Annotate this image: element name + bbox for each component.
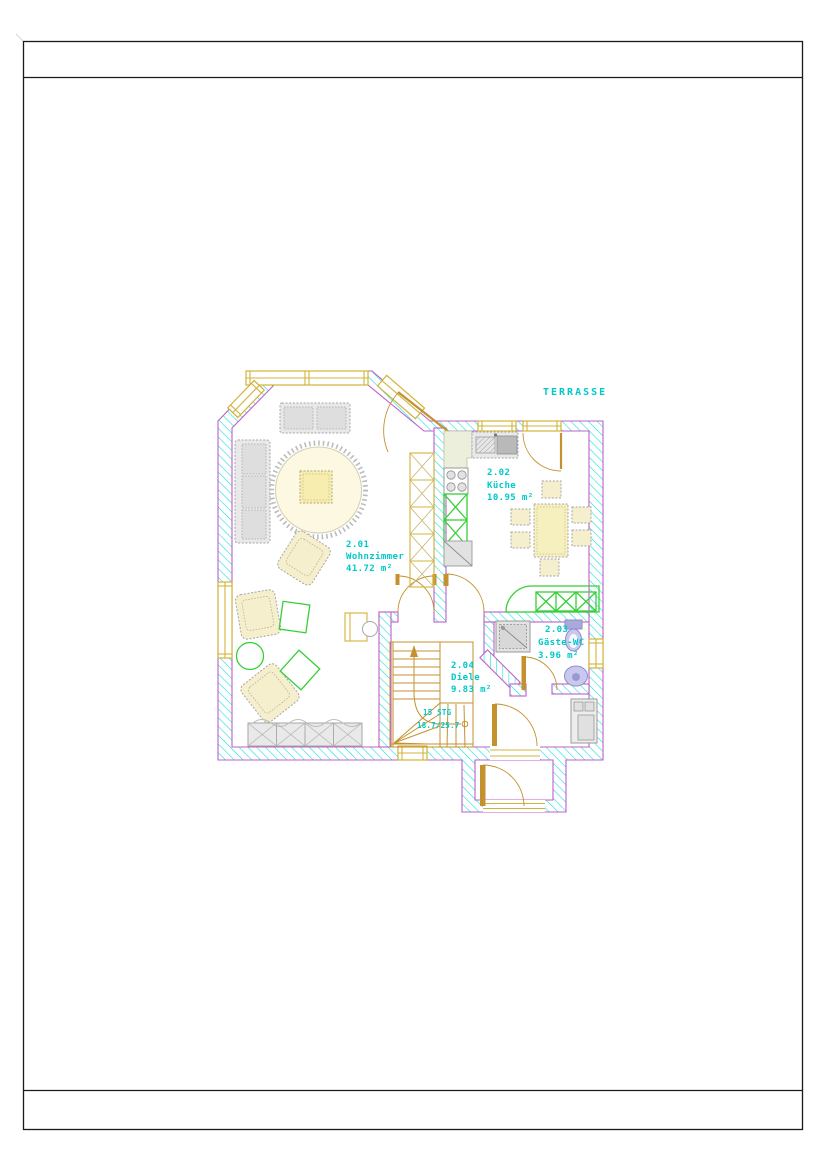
armchair	[275, 529, 332, 588]
window-living-left	[218, 582, 232, 658]
terrace-door-kitchen	[523, 421, 561, 471]
wood-stove	[345, 613, 378, 641]
double-door-living-hall	[396, 574, 437, 612]
dining-table	[534, 504, 568, 557]
armchair	[234, 589, 281, 640]
living-room-furniture	[234, 403, 434, 746]
door-hall-vestibule	[490, 704, 540, 760]
corner-fold-mark	[16, 34, 23, 41]
kitchen-sink	[472, 432, 518, 458]
wall-wc-left	[484, 622, 494, 655]
window-living-top	[246, 371, 368, 385]
shower	[496, 621, 530, 652]
shelf-unit-x	[410, 453, 434, 587]
room-number-wc: 2.03	[545, 625, 568, 635]
stair-steps-label: 15 STG	[423, 708, 452, 717]
window-wc-right	[589, 639, 603, 668]
corner-cabinet	[444, 541, 472, 566]
room-area-diele: 9.83 m²	[451, 685, 492, 695]
armchair	[239, 661, 302, 724]
sideboard-bottom	[248, 720, 362, 747]
room-number-diele: 2.04	[451, 661, 474, 671]
corner-bench	[506, 586, 599, 612]
wardrobe	[571, 699, 597, 743]
room-area-wc: 3.96 m²	[538, 651, 579, 661]
plant-circle	[237, 643, 264, 670]
drawing-sheet: 2.01 Wohnzimmer 41.72 m² 2.02 Küche 10.9…	[0, 0, 826, 1169]
coffee-table	[300, 471, 332, 503]
door-kitchen	[444, 574, 485, 612]
room-number-wohnzimmer: 2.01	[346, 540, 369, 550]
entrance-door	[480, 765, 545, 812]
wc-sink	[565, 666, 588, 686]
hall-furniture	[571, 699, 597, 743]
stair-ratio-label: 18.7/25.7	[417, 721, 459, 730]
room-name-wohnzimmer: Wohnzimmer	[346, 551, 404, 562]
side-table-green	[279, 601, 310, 632]
porch-inner-outline	[486, 812, 555, 849]
stove	[444, 468, 468, 494]
room-area-kueche: 10.95 m²	[487, 493, 534, 503]
entrance-steps	[505, 818, 528, 835]
sheet-frame	[16, 34, 803, 1130]
wall-living-hall	[379, 612, 391, 747]
window-kitchen-top	[478, 421, 516, 431]
room-area-wohnzimmer: 41.72 m²	[346, 564, 393, 574]
room-number-kueche: 2.02	[487, 468, 510, 478]
kitchen-counter	[444, 431, 472, 468]
sideboard-top	[280, 403, 350, 433]
room-name-wc: Gäste-WC	[538, 638, 585, 648]
terrace-label: TERRASSE	[543, 387, 607, 398]
room-name-diele: Diele	[451, 672, 480, 683]
sheet-border	[24, 42, 803, 1130]
floor-plan-canvas: 2.01 Wohnzimmer 41.72 m² 2.02 Küche 10.9…	[0, 0, 826, 1169]
wall-wc-bottom	[552, 684, 589, 694]
room-name-kueche: Küche	[487, 481, 516, 491]
sofa-left	[235, 440, 270, 543]
kitchen-furniture	[444, 431, 599, 612]
tall-cabinet-green	[444, 494, 467, 546]
window-hall-bottom	[398, 746, 427, 760]
